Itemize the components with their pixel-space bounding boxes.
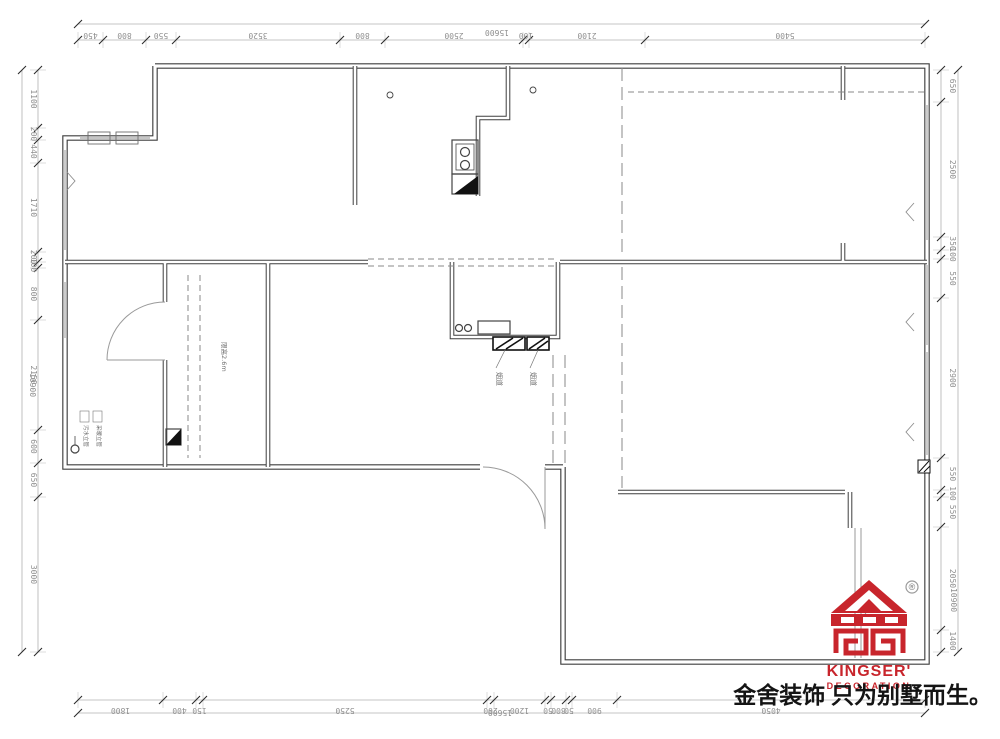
dim-label-left: 3000 [29,565,38,584]
hob-burner [465,325,472,332]
dim-label-right: 100 [948,486,957,501]
dim-label-right: 650 [948,79,957,94]
window-chevron-icon [906,203,914,221]
dim-label-top: 800 [355,31,370,40]
ceiling-point [387,92,393,98]
dim-label-left: 600 [29,439,38,454]
dim-label-bottom: 400 [172,706,187,715]
pipe-label: 采暖立管 [95,425,103,448]
logo-spirals [836,631,903,653]
column-hatch [918,460,930,473]
leader-line [530,350,538,368]
floor-plan-canvas: 4508005503520800250010021005400156001800… [0,0,1000,739]
flue-label: 烟道 [495,372,504,386]
dim-total-left: 10900 [28,373,37,397]
dim-label-left: 800 [29,287,38,302]
dim-total-right: 10900 [949,588,958,612]
dim-label-top: 5400 [775,31,794,40]
label-box [80,411,89,422]
registered-mark: ® [909,582,916,592]
window-chevron-icon [906,313,914,331]
pipe-label: 污水立管 [82,425,90,448]
dim-label-top: 450 [83,31,98,40]
dim-label-left: 1100 [29,89,38,108]
inner-walls-layer [65,66,927,528]
dim-label-right: 2900 [948,368,957,387]
label-box [93,411,102,422]
door-arc [107,302,165,360]
ceiling-point [530,87,536,93]
dim-label-right: 550 [948,271,957,286]
leader-line [496,350,505,368]
door-arc [483,467,545,529]
dim-label-left: 100 [29,258,38,273]
dim-label-bottom: 150 [192,706,207,715]
dim-label-top: 800 [117,31,132,40]
dim-total-bottom: 15600 [488,708,512,717]
window-chevron-icon [906,423,914,441]
dim-label-bottom: 800 [551,706,566,715]
annotations-layer: 烟道 烟道 污水立管 采暖立管 限高2.6m [82,342,538,448]
dim-label-top: 550 [154,31,169,40]
dim-label-top: 100 [519,31,534,40]
dim-label-bottom: 50 [564,706,574,715]
dim-label-top: 3520 [248,31,267,40]
logo-wordmark: KINGSER' [827,663,912,680]
dim-label-right: 2500 [948,160,957,179]
kingser-logo: ® KINGSER' DECORATION [827,580,918,691]
dim-label-bottom: 1800 [111,706,130,715]
dimension-layer: 4508005503520800250010021005400156001800… [18,20,962,717]
dim-label-left: 440 [29,144,38,159]
pipe-riser [71,445,79,453]
dim-label-right: 100 [948,247,957,262]
sink-basin [461,161,470,170]
outer-walls-layer [65,66,927,662]
dim-label-right: 2050 [948,569,957,588]
company-slogan: 金舍装饰 只为别墅而生。 [732,682,992,708]
flue-wedge [454,176,478,194]
dim-label-right: 550 [948,505,957,520]
dim-label-right: 1400 [948,631,957,650]
dim-label-left: 1710 [29,198,38,217]
room-note: 限高2.6m [220,342,229,372]
dim-label-left: 200 [29,127,38,142]
dim-label-right: 550 [948,467,957,482]
flue-hatch [493,337,549,350]
sink-basin [461,148,470,157]
dim-label-top: 2100 [577,31,596,40]
window-chevron-icon [67,172,75,190]
counter [478,321,510,334]
flue-wedge [166,429,181,445]
flue-label: 烟道 [529,372,538,386]
dim-label-left: 650 [29,473,38,488]
hob-burner [456,325,463,332]
dim-label-bottom: 5250 [335,706,354,715]
blueprint-page: 4508005503520800250010021005400156001800… [0,0,1000,739]
dim-total-top: 15600 [485,28,509,37]
dim-label-bottom: 900 [587,706,602,715]
dim-label-top: 2500 [444,31,463,40]
